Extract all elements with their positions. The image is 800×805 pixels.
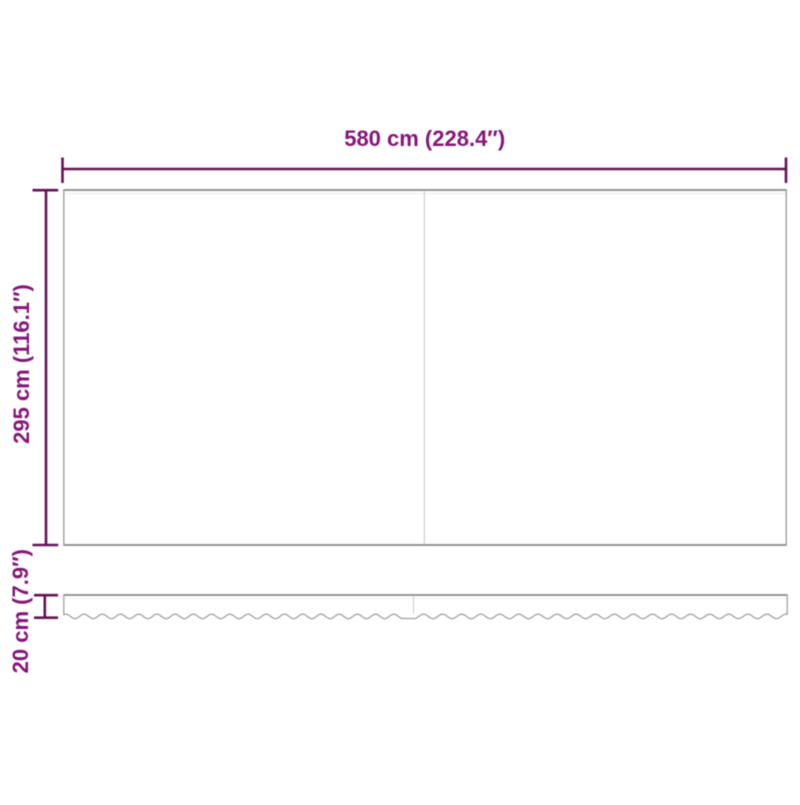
svg-text:20 cm (7.9″): 20 cm (7.9″) <box>8 549 33 673</box>
svg-text:580 cm (228.4″): 580 cm (228.4″) <box>344 126 505 151</box>
svg-text:295 cm (116.1″): 295 cm (116.1″) <box>9 284 34 444</box>
